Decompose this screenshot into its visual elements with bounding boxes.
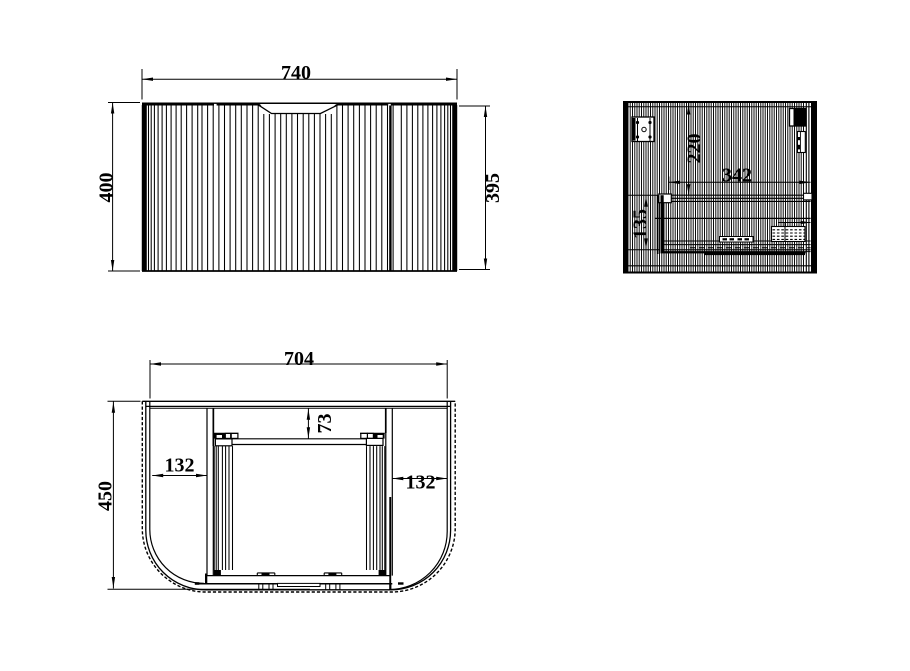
svg-text:135: 135 <box>629 209 651 239</box>
svg-text:395: 395 <box>482 173 504 203</box>
svg-text:220: 220 <box>683 134 705 164</box>
svg-text:704: 704 <box>284 348 314 370</box>
svg-text:400: 400 <box>95 173 117 203</box>
svg-text:73: 73 <box>314 414 336 434</box>
svg-text:342: 342 <box>722 165 752 187</box>
svg-text:450: 450 <box>95 481 117 511</box>
svg-text:740: 740 <box>281 62 311 84</box>
svg-text:132: 132 <box>406 472 436 494</box>
svg-text:132: 132 <box>165 455 195 477</box>
